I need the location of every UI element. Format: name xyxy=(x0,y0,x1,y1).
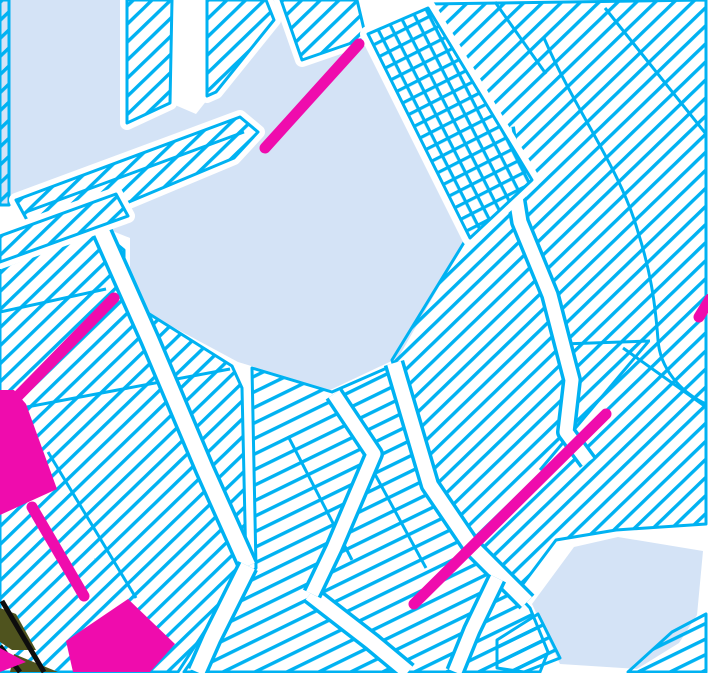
map-viewport[interactable] xyxy=(0,0,708,673)
parcel-left-edge-strip xyxy=(0,0,9,205)
zoning-map-svg[interactable] xyxy=(0,0,708,673)
parcel-bar-north-a xyxy=(127,0,172,123)
